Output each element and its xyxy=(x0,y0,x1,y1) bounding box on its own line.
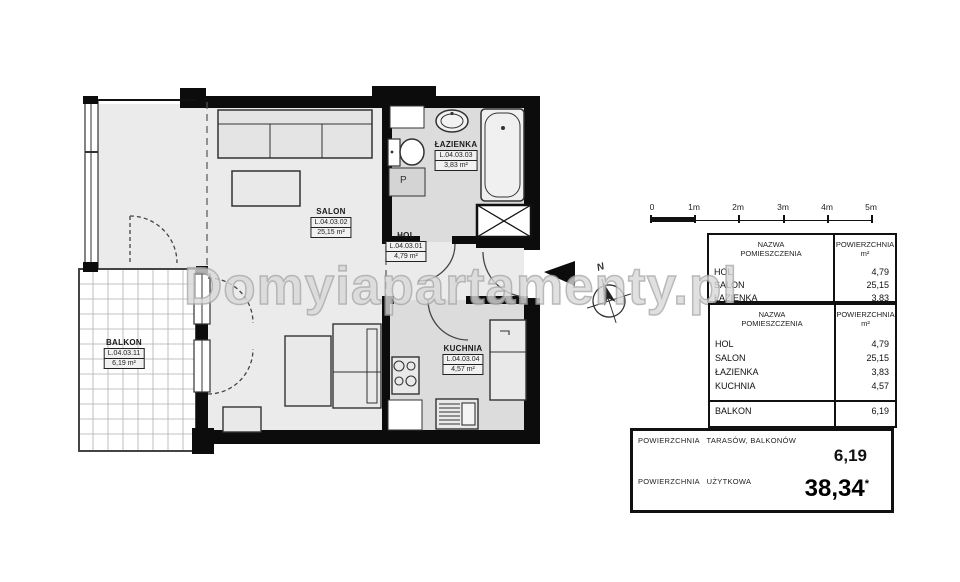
scale-tick xyxy=(871,215,873,223)
row-name: HOL xyxy=(710,338,734,351)
scale-label-1m: 1m xyxy=(688,202,700,212)
room-area: 4,57 m² xyxy=(442,365,483,375)
room-name: SALON xyxy=(310,207,351,217)
room-code: L.04.03.04 xyxy=(442,354,483,365)
table-row: ŁAZIENKA 3,83 xyxy=(710,366,895,379)
room-area: 3,83 m² xyxy=(435,161,478,171)
room-name: HOL xyxy=(385,231,426,241)
room-label-kuchnia: KUCHNIA L.04.03.04 4,57 m² xyxy=(442,344,483,375)
scale-bar: 0 1m 2m 3m 4m 5m xyxy=(648,202,880,228)
usable-area-number: 38,34 xyxy=(805,475,865,502)
area-table: NAZWA POMIESZCZENIA POWIERZCHNIA m² HOL … xyxy=(708,303,897,428)
room-name: BALKON xyxy=(104,338,145,348)
sofa xyxy=(218,110,372,158)
shaft-box xyxy=(477,205,531,237)
scale-tick xyxy=(694,215,696,223)
row-value: 4,79 xyxy=(871,266,895,279)
scale-label-4m: 4m xyxy=(821,202,833,212)
table-row: KUCHNIA 4,57 xyxy=(710,380,895,393)
row-value: 25,15 xyxy=(866,279,895,292)
stove xyxy=(392,357,419,394)
bathtub xyxy=(481,109,524,201)
table-header-name: NAZWA POMIESZCZENIA xyxy=(710,310,834,328)
row-value: 3,83 xyxy=(871,292,895,303)
table-row: SALON 25,15 xyxy=(710,352,895,365)
table-header-area: POWIERZCHNIA m² xyxy=(835,240,895,258)
scale-label-0: 0 xyxy=(650,202,655,212)
room-name: KUCHNIA xyxy=(442,344,483,354)
bed xyxy=(285,324,381,408)
room-code: L.04.03.02 xyxy=(310,217,351,228)
washbasin xyxy=(436,110,468,132)
room-code: L.04.03.11 xyxy=(104,348,145,359)
scale-label-5m: 5m xyxy=(865,202,877,212)
scale-tick xyxy=(650,215,652,223)
washer xyxy=(389,168,425,196)
row-value: 4,57 xyxy=(871,380,895,393)
row-name: SALON xyxy=(710,352,746,365)
toilet xyxy=(388,139,424,166)
room-name: ŁAZIENKA xyxy=(435,140,478,150)
room-label-balkon: BALKON L.04.03.11 6,19 m² xyxy=(104,338,145,369)
summary-box: POWIERZCHNIA TARASÓW, BALKONÓW 6,19 POWI… xyxy=(630,428,894,513)
row-value: 4,79 xyxy=(871,338,895,351)
washer-label: P xyxy=(400,175,407,186)
scale-label-2m: 2m xyxy=(732,202,744,212)
room-code: L.04.03.01 xyxy=(385,241,426,252)
room-label-salon: SALON L.04.03.02 25,15 m² xyxy=(310,207,351,238)
usable-area-value: 38,34* xyxy=(805,475,869,503)
kitchen-cabinet xyxy=(388,400,422,430)
row-name: BALKON xyxy=(710,405,752,418)
coffee-table xyxy=(232,171,300,206)
room-label-lazienka: ŁAZIENKA L.04.03.03 3,83 m² xyxy=(435,140,478,171)
usable-area-label: POWIERZCHNIA UŻYTKOWA xyxy=(638,477,751,486)
table-row: HOL 4,79 xyxy=(710,338,895,351)
kitchen-sink xyxy=(436,399,478,429)
row-name: KUCHNIA xyxy=(710,380,756,393)
balconies-area-value: 6,19 xyxy=(834,446,867,466)
row-value: 25,15 xyxy=(866,352,895,365)
balconies-area-label: POWIERZCHNIA TARASÓW, BALKONÓW xyxy=(638,436,796,445)
window-band-left xyxy=(83,96,196,272)
room-area: 6,19 m² xyxy=(104,359,145,369)
room-code: L.04.03.03 xyxy=(435,150,478,161)
scale-tick xyxy=(827,215,829,223)
table-header-area: POWIERZCHNIA m² xyxy=(836,310,895,328)
row-value: 6,19 xyxy=(871,405,895,418)
room-area: 25,15 m² xyxy=(310,228,351,238)
usable-area-asterisk: * xyxy=(865,478,869,490)
row-name: ŁAZIENKA xyxy=(710,366,759,379)
scale-label-3m: 3m xyxy=(777,202,789,212)
bathroom-cabinet xyxy=(390,106,424,128)
row-value: 3,83 xyxy=(871,366,895,379)
scale-bar-line xyxy=(650,220,872,222)
kitchen-counter xyxy=(490,320,526,400)
table-row-balkon: BALKON 6,19 xyxy=(710,405,895,418)
watermark: Domyiapartamenty.pl xyxy=(184,256,738,317)
nightstand xyxy=(223,407,261,432)
table-separator xyxy=(710,400,895,402)
floor-plan-page: SALON L.04.03.02 25,15 m² HOL L.04.03.01… xyxy=(0,0,960,582)
scale-tick xyxy=(738,215,740,223)
scale-tick xyxy=(783,215,785,223)
